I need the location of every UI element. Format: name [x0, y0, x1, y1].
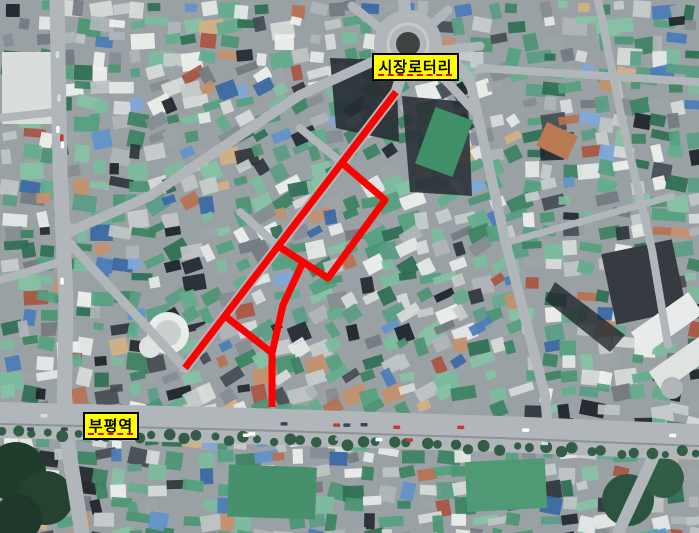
building-tile: [275, 34, 294, 50]
street-tree: [13, 426, 24, 437]
building-tile: [614, 17, 633, 33]
building-tile: [523, 212, 535, 227]
building-tile: [254, 4, 268, 14]
building-tile: [90, 306, 100, 318]
building-tile: [111, 449, 121, 462]
building-tile: [544, 54, 555, 61]
building-tile: [542, 353, 558, 367]
building-tile: [540, 211, 556, 223]
building-tile: [522, 241, 542, 249]
building-tile: [560, 99, 573, 114]
building-tile: [558, 196, 570, 205]
building-tile: [629, 384, 646, 400]
building-tile: [686, 131, 699, 149]
street-tree: [178, 433, 189, 444]
building-tile: [128, 258, 142, 269]
building-tile: [36, 193, 51, 204]
street-tree: [27, 430, 35, 438]
building-tile: [594, 352, 619, 369]
car: [522, 428, 529, 432]
building-tile: [185, 3, 198, 12]
building-tile: [667, 113, 680, 129]
street-tree: [389, 436, 400, 447]
car: [56, 126, 60, 133]
label-market-rotary: 시장로터리: [372, 53, 459, 81]
street-tree: [147, 431, 155, 439]
car: [60, 278, 64, 285]
building-tile: [236, 49, 253, 62]
street-tree: [451, 440, 461, 450]
building-tile: [361, 466, 374, 481]
building-tile: [198, 112, 211, 124]
building-tile: [363, 452, 375, 463]
building-tile: [310, 34, 321, 44]
building-tile: [382, 467, 399, 477]
building-tile: [198, 452, 215, 469]
label-market-rotary-text: 시장로터리: [378, 60, 452, 75]
street-tree: [478, 440, 490, 452]
building-tile: [669, 130, 681, 146]
street-tree: [525, 443, 534, 452]
car: [27, 427, 34, 431]
map-feature: [227, 464, 317, 519]
building-tile: [363, 496, 382, 506]
building-tile: [688, 177, 699, 192]
building-tile: [36, 356, 54, 371]
building-tile: [632, 354, 644, 363]
building-tile: [74, 65, 93, 81]
building-tile: [668, 145, 684, 158]
street-tree: [75, 430, 83, 438]
street-tree: [284, 433, 296, 445]
building-tile: [505, 3, 517, 13]
building-tile: [686, 516, 699, 526]
building-tile: [689, 213, 699, 223]
building-tile: [94, 513, 114, 527]
street-tree: [191, 430, 202, 441]
building-tile: [95, 100, 109, 113]
building-tile: [563, 176, 576, 188]
building-tile: [653, 226, 672, 235]
car: [335, 437, 342, 441]
building-tile: [381, 259, 394, 272]
building-tile: [632, 0, 651, 18]
car: [281, 422, 288, 426]
building-tile: [91, 129, 113, 150]
label-bupyeong-station: 부평역: [83, 412, 139, 440]
building-tile: [93, 322, 104, 331]
car: [457, 426, 464, 430]
building-tile: [342, 32, 357, 44]
building-tile: [94, 356, 107, 366]
street-tree: [358, 436, 369, 447]
building-tile: [382, 529, 392, 533]
car: [333, 423, 340, 427]
road: [444, 46, 480, 50]
street-tree: [587, 447, 596, 456]
street-tree: [494, 445, 505, 456]
label-bupyeong-station-text: 부평역: [89, 419, 133, 434]
building-tile: [594, 95, 610, 113]
building-tile: [451, 514, 466, 526]
building-tile: [198, 196, 215, 215]
street-tree: [311, 437, 322, 448]
building-tile: [615, 226, 630, 241]
building-tile: [110, 356, 123, 365]
map-feature: [661, 377, 683, 399]
building-tile: [109, 52, 122, 66]
building-tile: [129, 97, 144, 112]
building-tile: [669, 84, 683, 93]
aerial-map: 시장로터리 부평역: [0, 0, 699, 533]
building-tile: [525, 161, 539, 177]
building-tile: [109, 337, 129, 356]
street-tree: [629, 448, 639, 458]
street-tree: [212, 432, 220, 440]
building-tile: [109, 82, 134, 94]
car: [61, 427, 68, 431]
car: [375, 438, 382, 442]
street-tree: [44, 429, 52, 437]
building-tile: [36, 388, 46, 400]
building-tile: [473, 255, 488, 268]
building-tile: [525, 277, 538, 289]
building-tile: [1, 259, 20, 273]
building-tile: [292, 449, 303, 464]
building-tile: [689, 497, 699, 507]
building-tile: [233, 515, 252, 533]
street-tree: [566, 442, 578, 454]
building-tile: [653, 36, 663, 52]
building-tile: [684, 20, 696, 30]
building-tile: [578, 224, 594, 239]
building-tile: [19, 18, 30, 30]
building-tile: [127, 464, 142, 472]
street-tree: [342, 439, 354, 451]
building-tile: [581, 466, 599, 482]
building-tile: [560, 48, 575, 62]
street-tree: [617, 450, 626, 459]
building-tile: [113, 101, 131, 115]
building-tile: [577, 292, 598, 302]
building-tile: [23, 143, 42, 160]
building-tile: [147, 3, 160, 11]
building-tile: [111, 468, 125, 487]
building-tile: [544, 243, 565, 260]
building-tile: [72, 178, 89, 197]
building-tile: [632, 134, 646, 144]
building-tile: [201, 0, 218, 16]
building-tile: [379, 515, 404, 527]
street-tree: [433, 440, 442, 449]
building-tile: [93, 160, 106, 174]
building-tile: [90, 80, 111, 94]
building-tile: [598, 404, 620, 415]
building-tile: [75, 33, 85, 44]
building-tile: [577, 515, 597, 533]
building-tile: [234, 5, 249, 20]
street-tree: [164, 429, 176, 441]
street-tree: [662, 451, 669, 458]
building-tile: [164, 451, 183, 471]
building-tile: [596, 529, 609, 533]
building-tile: [630, 51, 642, 66]
building-tile: [614, 36, 633, 44]
building-tile: [127, 162, 148, 181]
car: [248, 432, 255, 436]
building-tile: [323, 209, 337, 225]
street-tree: [270, 438, 278, 446]
street-tree: [56, 430, 68, 442]
building-tile: [21, 230, 34, 238]
building-tile: [272, 452, 284, 461]
building-tile: [562, 355, 575, 368]
car: [343, 423, 350, 427]
building-tile: [576, 16, 597, 24]
building-tile: [432, 515, 443, 533]
building-tile: [217, 450, 234, 463]
building-tile: [613, 1, 624, 10]
street-tree: [677, 445, 688, 456]
building-tile: [145, 450, 160, 465]
building-tile: [557, 404, 570, 421]
building-tile: [110, 384, 123, 392]
building-tile: [402, 450, 425, 463]
building-tile: [127, 209, 149, 229]
car: [541, 442, 548, 446]
building-tile: [560, 370, 577, 383]
satellite-canvas: [0, 0, 699, 533]
building-tile: [508, 21, 526, 34]
building-tile: [4, 355, 21, 373]
building-tile: [562, 240, 577, 256]
building-tile: [148, 486, 167, 497]
building-tile: [129, 1, 144, 19]
building-tile: [558, 1, 568, 9]
building-tile: [256, 53, 267, 66]
building-tile: [453, 337, 469, 353]
building-tile: [148, 464, 167, 480]
building-tile: [200, 33, 217, 49]
car: [61, 141, 64, 148]
building-tile: [77, 451, 98, 465]
building-tile: [563, 497, 577, 510]
building-tile: [108, 65, 120, 73]
building-tile: [544, 323, 565, 343]
building-tile: [329, 2, 345, 17]
building-tile: [41, 310, 58, 321]
building-tile: [666, 211, 686, 222]
street-tree: [514, 442, 521, 449]
building-tile: [145, 372, 157, 383]
building-tile: [472, 450, 492, 461]
building-tile: [130, 68, 140, 78]
building-tile: [595, 289, 609, 302]
building-tile: [578, 3, 590, 12]
building-tile: [90, 113, 100, 123]
building-tile: [329, 452, 348, 466]
building-tile: [20, 162, 44, 180]
building-tile: [544, 37, 565, 48]
building-tile: [94, 373, 108, 388]
car: [669, 434, 676, 438]
building-tile: [598, 117, 614, 133]
map-feature: [465, 458, 548, 512]
building-tile: [6, 4, 20, 17]
street-tree: [463, 444, 473, 454]
building-tile: [524, 257, 544, 267]
building-tile: [631, 81, 641, 89]
car: [361, 423, 368, 427]
building-tile: [684, 100, 699, 110]
car: [60, 134, 64, 141]
building-tile: [344, 497, 364, 511]
building-tile: [505, 512, 520, 526]
building-tile: [21, 242, 37, 259]
building-tile: [666, 64, 688, 75]
car: [406, 438, 413, 442]
building-tile: [580, 354, 595, 372]
building-tile: [544, 96, 557, 111]
building-tile: [685, 50, 699, 58]
building-tile: [633, 113, 652, 130]
building-tile: [148, 276, 160, 289]
building-tile: [544, 16, 555, 26]
street-tree: [595, 445, 606, 456]
building-tile: [129, 144, 140, 159]
building-tile: [218, 50, 239, 60]
building-tile: [0, 384, 15, 398]
building-tile: [72, 194, 98, 213]
building-tile: [129, 181, 150, 192]
building-tile: [130, 33, 155, 50]
building-tile: [2, 213, 27, 227]
car: [56, 51, 60, 58]
street-tree: [647, 448, 659, 460]
building-tile: [109, 32, 125, 40]
car: [393, 426, 400, 430]
building-tile: [546, 259, 562, 269]
building-tile: [0, 179, 19, 197]
street-tree: [556, 446, 567, 457]
building-tile: [129, 383, 142, 395]
building-tile: [1, 149, 12, 164]
building-tile: [185, 130, 199, 143]
street-tree: [422, 438, 433, 449]
street-tree: [295, 435, 305, 445]
building-tile: [2, 194, 18, 207]
building-tile: [110, 163, 119, 175]
building-tile: [40, 245, 55, 258]
building-tile: [109, 19, 125, 28]
building-tile: [451, 466, 467, 477]
building-tile: [577, 163, 600, 180]
building-tile: [74, 144, 91, 163]
building-tile: [310, 51, 324, 63]
building-tile: [397, 501, 410, 509]
building-tile: [559, 340, 576, 357]
car: [57, 94, 61, 101]
building-tile: [40, 227, 50, 235]
building-tile: [651, 208, 667, 221]
car: [40, 414, 47, 418]
building-tile: [21, 370, 35, 380]
building-tile: [72, 0, 84, 16]
street-tree: [224, 436, 234, 446]
